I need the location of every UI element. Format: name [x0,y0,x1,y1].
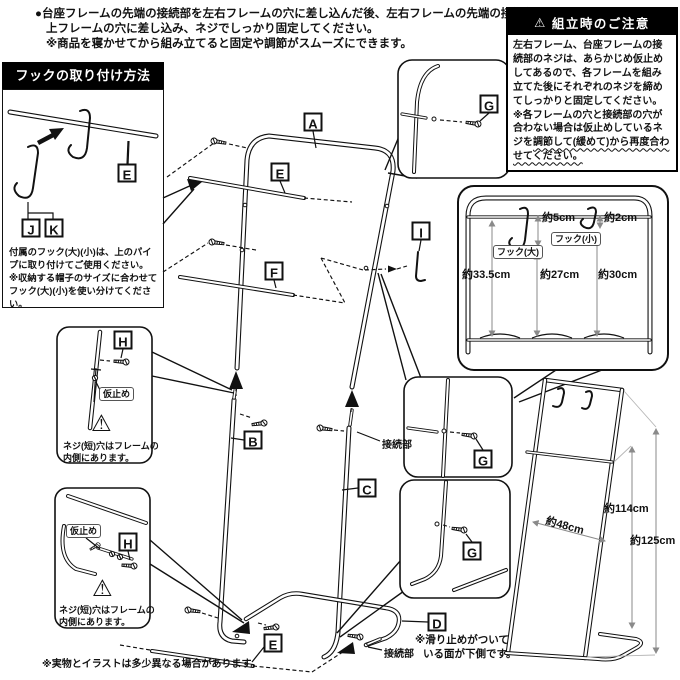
callout-g1 [398,60,510,178]
screw-icon [264,624,280,632]
product-total-height: 約125cm [630,532,675,548]
warning-icon: ⚠ [534,15,547,30]
part-label-a: A [304,113,323,132]
part-label-g2: G [474,450,493,469]
dim-hook-small-drop: 約2cm [604,209,637,225]
screw-icon [252,420,268,428]
dim-left-height: 約33.5cm [462,266,510,282]
callout-g3 [400,480,510,598]
part-label-e-bottom: E [264,634,283,653]
part-label-d: D [428,613,447,632]
part-label-i: I [412,222,431,241]
top-instruction-line3: ※商品を寝かせてから組み立てると固定や調節がスムーズにできます。 [35,37,547,52]
exploded-diagram [120,136,425,672]
top-instruction-line2: 上フレームの穴に差し込み、ネジでしっかり固定してください。 [35,22,547,37]
dim-center-height: 約27cm [540,266,579,282]
product-frame-height: 約114cm [604,500,649,516]
caution-title: 組立時のご注意 [552,13,650,32]
screw-icon [209,239,225,247]
connector-label-lower: 接続部 [384,645,414,660]
hook-note-1: 付属のフック(大)(小)は、上のパイプに取り付けてご使用ください。 [9,246,159,272]
screw-icon [317,425,333,433]
part-label-f: F [265,262,284,281]
part-label-h2: H [119,533,138,552]
callout-g2 [404,377,512,477]
dim-hook-large-drop: 約5cm [542,209,575,225]
hook-method-title: フックの取り付け方法 [2,62,164,89]
finished-product-art [506,380,656,660]
hook-small-tag: フック(小) [551,232,601,246]
part-label-e-upper: E [271,163,290,182]
caution-header: ⚠ 組立時のご注意 [508,9,676,35]
temp-fix-label-1: 仮止め [99,387,134,401]
part-label-b: B [244,431,263,450]
hook-method-note: 付属のフック(大)(小)は、上のパイプに取り付けてご使用ください。 ※収納する帽… [9,246,159,311]
screw-icon [185,607,201,615]
hook-large-tag: フック(大) [493,245,543,259]
instruction-sheet: ●台座フレームの先端の接続部を左右フレームの穴に差し込んだ後、左右フレームの先端… [0,0,680,680]
screw-hole-note-1: ネジ(短)穴はフレームの 内側にあります。 [63,440,159,464]
screw-icon [211,138,227,147]
dim-right-height: 約30cm [598,266,637,282]
part-label-g3: G [463,542,482,561]
product-hook [553,388,564,407]
caution-note-wavy: 調節して(緩めて)から再度合わせてください。 [513,137,669,162]
footer-note: ※実物とイラストは多少異なる場合があります。 [42,655,261,670]
warning-icon: ⚠ [92,577,113,600]
part-label-c: C [358,479,377,498]
connector-label-upper: 接続部 [382,436,412,451]
screw-hole-note-2: ネジ(短)穴はフレームの 内側にあります。 [59,604,155,628]
product-hook [582,391,592,409]
top-instruction-line1: ●台座フレームの先端の接続部を左右フレームの穴に差し込んだ後、左右フレームの先端… [35,7,547,22]
screw-icon [348,632,364,640]
part-label-g1: G [480,95,499,114]
part-label-e-hookpanel: E [118,164,137,183]
caution-body: 左右フレーム、台座フレームの接続部のネジは、あらかじめ仮止めしてあるので、各フレ… [508,35,676,170]
assembly-caution-box: ⚠ 組立時のご注意 左右フレーム、台座フレームの接続部のネジは、あらかじめ仮止め… [506,7,678,172]
caution-body-text: 左右フレーム、台座フレームの接続部のネジは、あらかじめ仮止めしてあるので、各フレ… [513,40,663,107]
top-instruction: ●台座フレームの先端の接続部を左右フレームの穴に差し込んだ後、左右フレームの先端… [35,7,547,52]
anti-slip-note: ※滑り止めがついて いる面が下側です。 [415,633,516,661]
part-label-j: J [22,219,41,238]
part-label-h1: H [114,331,133,350]
temp-fix-label-2: 仮止め [66,524,101,538]
warning-icon: ⚠ [91,412,112,435]
hook-note-2: ※収納する帽子のサイズに合わせてフック(大)(小)を使い分けてください。 [9,272,159,311]
part-label-k: K [45,219,64,238]
